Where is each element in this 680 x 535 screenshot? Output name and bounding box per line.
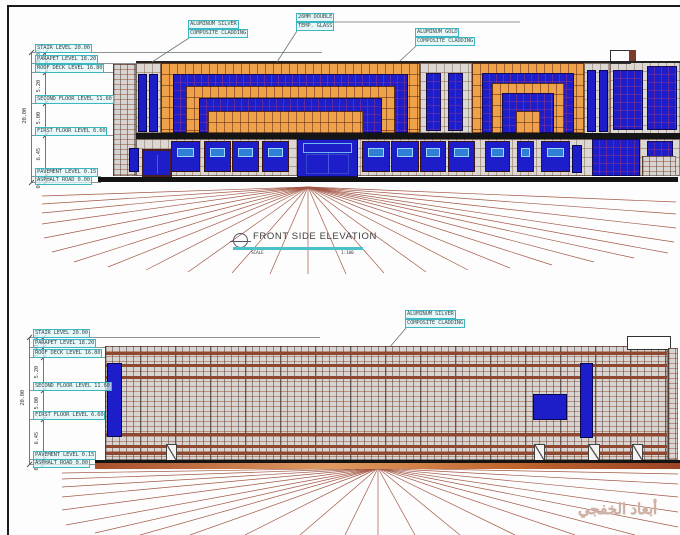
callout-temp-glass: 26MM DOUBLE TEMP. GLASS [296,13,334,31]
callout-text: ALUMINUM GOLD [415,28,459,37]
callout-text: 26MM DOUBLE [296,13,334,22]
cladding-band [106,352,667,355]
callout-text: TEMP. GLASS [296,22,334,31]
rear-window-tall [580,363,593,438]
cladding-band [106,452,667,455]
rear-door-marker [534,444,545,461]
dim-seg-3b: 5.20 [34,366,40,378]
dim-seg-5b: 6.45 [34,432,40,444]
callout-text: COMPOSITE CLADDING [405,319,465,328]
rear-door-marker [166,444,177,461]
drawing-title: FRONT SIDE ELEVATION [253,231,377,242]
rear-door-marker [588,444,600,461]
level-label-parapet-2: PARAPET LEVEL 18.20 [33,339,96,348]
rear-right-column [668,348,678,460]
callout-aluminum-gold: ALUMINUM GOLD COMPOSITE CLADDING [415,28,475,46]
elevation-drawing-sheet: 1.80 1.40 5.20 5.00 6.45 0.15 20.00 [0,0,680,535]
rear-window-tall [107,363,122,437]
level-label-first-floor-2: FIRST FLOOR LEVEL 6.60 [33,411,105,420]
level-label-asphalt-2: ASPHALT ROAD 0.00 [33,459,90,468]
callout-aluminum-silver-front: ALUMINUM SILVER COMPOSITE CLADDING [188,20,248,38]
level-label-roof-deck-2: ROOF DECK LEVEL 16.80 [33,349,102,358]
rear-door-marker [632,444,643,461]
scale-value: 1:100 [341,251,354,256]
watermark-text: أبعاد الخفجي [578,500,657,518]
title-underline-bar [233,247,363,250]
scale-label: SCALE [251,251,264,256]
level-label-second-floor-2: SECOND FLOOR LEVEL 11.60 [33,382,112,391]
level-label-stair-2: STAIR LEVEL 20.00 [33,329,90,338]
callout-aluminum-silver-rear: ALUMINUM SILVER COMPOSITE CLADDING [405,310,465,328]
callout-text: COMPOSITE CLADDING [415,37,475,46]
callout-text: COMPOSITE CLADDING [188,29,248,38]
rear-roof-box [627,336,671,350]
dim-overall-2: 20.00 [20,390,26,406]
overall-dim-line-2 [29,337,30,464]
rear-asphalt-band [95,463,680,469]
cladding-band [106,445,667,448]
elevation-marker-circle [233,233,248,248]
callout-text: ALUMINUM SILVER [188,20,239,29]
rear-window [533,394,567,420]
dim-seg-4b: 5.00 [34,397,40,409]
callout-text: ALUMINUM SILVER [405,310,456,319]
